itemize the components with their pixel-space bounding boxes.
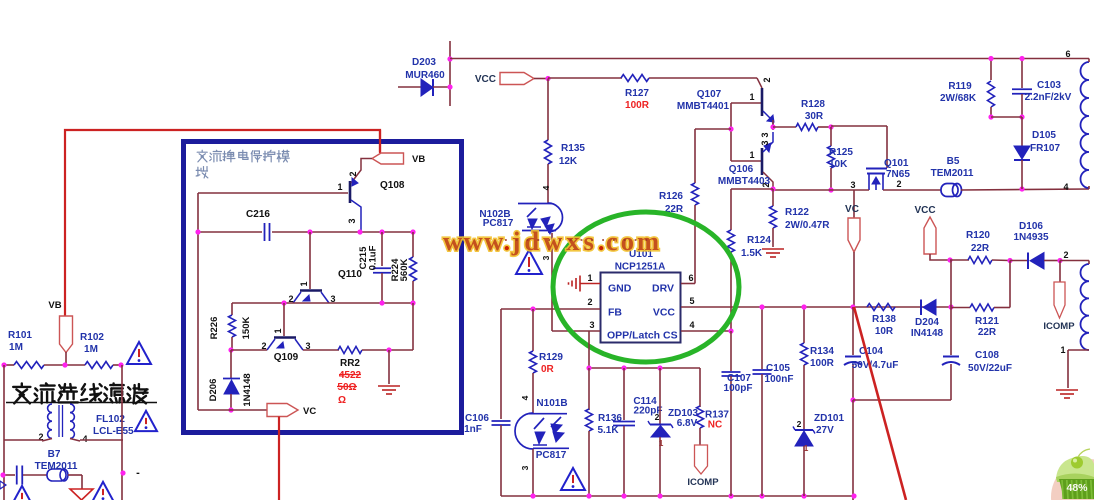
svg-text:6: 6 [688, 273, 693, 283]
svg-text:10R: 10R [875, 326, 894, 337]
svg-text:4: 4 [82, 434, 87, 444]
svg-text:1: 1 [299, 281, 309, 286]
svg-text:0.1uF: 0.1uF [368, 245, 379, 270]
svg-text:R125: R125 [829, 147, 853, 158]
svg-text:C108: C108 [975, 350, 999, 361]
svg-text:R122: R122 [785, 207, 809, 218]
svg-text:R120: R120 [966, 230, 990, 241]
svg-text:50V/22uF: 50V/22uF [968, 363, 1012, 374]
svg-text:LCL-E55: LCL-E55 [93, 426, 134, 437]
svg-text:1N4935: 1N4935 [1013, 232, 1048, 243]
svg-text:2: 2 [1063, 250, 1068, 260]
svg-text:1: 1 [804, 443, 809, 453]
svg-text:4: 4 [541, 185, 551, 190]
svg-text:C105: C105 [766, 363, 790, 374]
svg-text:30R: 30R [805, 111, 824, 122]
svg-text:2.2nF/2kV: 2.2nF/2kV [1025, 92, 1072, 103]
svg-text:B7: B7 [48, 449, 61, 460]
svg-text:R134: R134 [810, 346, 834, 357]
svg-text:N101B: N101B [536, 398, 567, 409]
svg-text:R121: R121 [975, 316, 999, 327]
svg-text:R128: R128 [801, 99, 825, 110]
svg-text:48%: 48% [1066, 482, 1088, 494]
svg-text:12K: 12K [559, 156, 578, 167]
svg-text:22R: 22R [978, 327, 997, 338]
svg-text:22R: 22R [971, 243, 990, 254]
svg-text:Ω: Ω [338, 395, 346, 406]
svg-text:R102: R102 [80, 332, 104, 343]
svg-text:3: 3 [541, 255, 551, 260]
svg-text:MMBT4401: MMBT4401 [677, 101, 730, 112]
svg-text:Q101: Q101 [884, 158, 909, 169]
svg-text:1nF: 1nF [464, 424, 482, 435]
svg-text:OPP/Latch CS: OPP/Latch CS [607, 330, 678, 342]
svg-text:TEM2011: TEM2011 [35, 461, 78, 472]
svg-text:4: 4 [520, 395, 530, 400]
svg-text:5: 5 [689, 296, 694, 306]
svg-text:3: 3 [347, 218, 357, 223]
svg-text:RR2: RR2 [340, 358, 360, 369]
svg-text:27V: 27V [816, 425, 834, 436]
svg-text:1: 1 [337, 182, 342, 192]
svg-text:NCP1251A: NCP1251A [615, 262, 666, 273]
svg-text:2: 2 [348, 171, 358, 176]
svg-text:D105: D105 [1032, 130, 1056, 141]
svg-text:2W/68K: 2W/68K [940, 93, 977, 104]
svg-text:FB: FB [608, 307, 622, 319]
svg-text:-: - [136, 467, 140, 479]
svg-text:50V/4.7uF: 50V/4.7uF [852, 360, 899, 371]
svg-text:VC: VC [845, 204, 859, 215]
svg-text:C216: C216 [246, 209, 270, 220]
svg-text:Q106: Q106 [729, 164, 754, 175]
svg-text:FR107: FR107 [1030, 143, 1060, 154]
svg-text:VCC: VCC [475, 74, 496, 85]
svg-text:ICOMP: ICOMP [1043, 321, 1075, 332]
svg-text:IN4148: IN4148 [911, 328, 944, 339]
svg-text:1: 1 [587, 273, 592, 283]
svg-text:1N4148: 1N4148 [242, 373, 253, 406]
svg-text:4: 4 [1063, 182, 1068, 192]
svg-text:D203: D203 [412, 57, 436, 68]
svg-text:Q108: Q108 [380, 180, 405, 191]
svg-text:5.1K: 5.1K [597, 425, 619, 436]
svg-text:VCC: VCC [914, 205, 935, 216]
svg-text:Q107: Q107 [697, 89, 722, 100]
svg-text:R124: R124 [747, 235, 771, 246]
svg-text:ZD101: ZD101 [814, 413, 844, 424]
svg-text:C103: C103 [1037, 80, 1061, 91]
svg-text:R119: R119 [948, 81, 972, 92]
svg-text:Q109: Q109 [274, 352, 299, 363]
svg-text:1.5K: 1.5K [741, 248, 763, 259]
svg-text:4522: 4522 [339, 370, 362, 381]
svg-text:3: 3 [589, 320, 594, 330]
svg-text:1: 1 [749, 150, 754, 160]
svg-text:2W/0.47R: 2W/0.47R [785, 220, 830, 231]
svg-text:FL102: FL102 [96, 414, 125, 425]
svg-text:100R: 100R [810, 358, 835, 369]
svg-text:TEM2011: TEM2011 [931, 168, 974, 179]
svg-text:10K: 10K [829, 159, 848, 170]
svg-text:C106: C106 [465, 413, 489, 424]
svg-text:D106: D106 [1019, 221, 1043, 232]
svg-text:3: 3 [520, 465, 530, 470]
svg-text:DRV: DRV [652, 283, 674, 295]
svg-text:NC: NC [708, 420, 722, 431]
svg-text:R135: R135 [561, 143, 585, 154]
svg-text:ICOMP: ICOMP [687, 477, 719, 488]
svg-text:4: 4 [689, 320, 694, 330]
svg-text:150K: 150K [241, 317, 252, 340]
svg-text:0R: 0R [541, 364, 555, 375]
svg-text:100pF: 100pF [724, 383, 753, 394]
svg-text:3: 3 [760, 132, 770, 137]
svg-text:2: 2 [797, 419, 802, 429]
svg-text:100nF: 100nF [765, 374, 794, 385]
svg-text:D204: D204 [915, 317, 939, 328]
svg-text:VCC: VCC [653, 307, 676, 319]
svg-text:2: 2 [587, 297, 592, 307]
svg-text:MUR460: MUR460 [405, 70, 445, 81]
svg-text:GND: GND [608, 283, 632, 295]
svg-text:560K: 560K [399, 259, 410, 282]
svg-text:2: 2 [762, 77, 772, 82]
svg-text:www.jdwxs.com: www.jdwxs.com [443, 226, 662, 256]
svg-text:1: 1 [749, 92, 754, 102]
svg-text:R126: R126 [659, 191, 683, 202]
svg-text:2: 2 [896, 179, 901, 189]
svg-text:R129: R129 [539, 352, 563, 363]
svg-text:1: 1 [659, 438, 664, 448]
svg-text:50Ω: 50Ω [337, 382, 356, 393]
svg-text:3: 3 [760, 140, 770, 145]
svg-text:VB: VB [48, 300, 61, 311]
svg-text:R138: R138 [872, 314, 896, 325]
svg-text:B5: B5 [947, 156, 960, 167]
svg-text:D206: D206 [208, 379, 219, 402]
svg-text:R127: R127 [625, 88, 649, 99]
svg-text:1M: 1M [9, 342, 23, 353]
svg-text:1M: 1M [84, 344, 98, 355]
svg-text:C104: C104 [859, 346, 883, 357]
svg-text:6: 6 [1065, 49, 1070, 59]
svg-text:Q110: Q110 [338, 269, 362, 280]
svg-text:100R: 100R [625, 100, 650, 111]
svg-text:1: 1 [1060, 345, 1065, 355]
svg-text:1: 1 [273, 328, 283, 333]
svg-text:MMBT4403: MMBT4403 [718, 176, 771, 187]
svg-text:VB: VB [412, 154, 425, 165]
svg-text:6.8V: 6.8V [677, 418, 698, 429]
svg-text:VC: VC [303, 406, 316, 417]
svg-text:PC817: PC817 [536, 450, 567, 461]
svg-text:R226: R226 [209, 317, 220, 340]
svg-text:R101: R101 [8, 330, 32, 341]
svg-text:2: 2 [655, 412, 660, 422]
svg-text:3: 3 [850, 180, 855, 190]
